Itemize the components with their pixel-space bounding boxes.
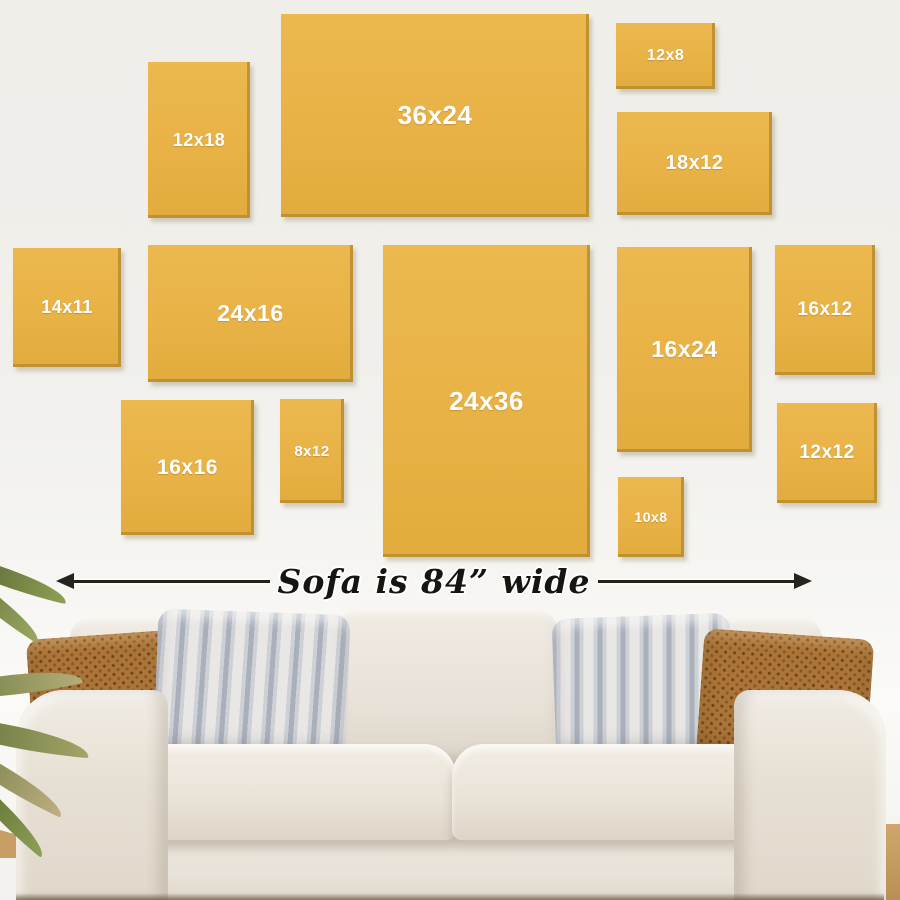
- frame-size-label: 8x12: [294, 443, 329, 460]
- arrowhead-left-icon: [56, 573, 74, 589]
- pillow-striped-left: [154, 609, 351, 761]
- frame-size-label: 36x24: [398, 100, 473, 131]
- sofa-width-annotation: Sofa is 84” wide: [56, 561, 812, 601]
- frame-size-label: 16x16: [157, 456, 218, 480]
- frame-size-label: 12x12: [799, 442, 854, 464]
- frame-12x18: 12x18: [148, 62, 250, 218]
- frame-24x16: 24x16: [148, 245, 353, 382]
- frame-size-label: 14x11: [41, 297, 93, 318]
- arrowhead-right-icon: [794, 573, 812, 589]
- sofa-width-label: Sofa is 84” wide: [278, 562, 591, 601]
- sofa-arm-right: [734, 690, 886, 900]
- frame-16x16: 16x16: [121, 400, 254, 535]
- frame-size-label: 16x12: [797, 299, 852, 321]
- frame-size-label: 24x16: [217, 300, 283, 327]
- frame-36x24: 36x24: [281, 14, 589, 217]
- measure-line-left: [74, 580, 270, 583]
- frame-16x24: 16x24: [617, 247, 752, 452]
- frame-size-label: 16x24: [651, 336, 717, 363]
- frame-12x8: 12x8: [616, 23, 715, 89]
- frame-10x8: 10x8: [618, 477, 684, 557]
- wall-art-size-guide-scene: 12x1836x2412x818x1214x1124x1616x168x1224…: [0, 0, 900, 900]
- sofa-arm-left: [16, 690, 168, 900]
- frame-size-label: 10x8: [634, 509, 667, 525]
- frame-16x12: 16x12: [775, 245, 875, 375]
- frame-size-label: 12x18: [173, 130, 226, 151]
- measure-line-right: [598, 580, 794, 583]
- frame-14x11: 14x11: [13, 248, 121, 367]
- frame-size-label: 12x8: [647, 47, 685, 65]
- frame-18x12: 18x12: [617, 112, 772, 215]
- frame-size-label: 18x12: [665, 152, 723, 175]
- sofa-bottom-shadow: [16, 893, 884, 900]
- frame-8x12: 8x12: [280, 399, 344, 503]
- frame-12x12: 12x12: [777, 403, 877, 503]
- frame-24x36: 24x36: [383, 245, 590, 557]
- frame-size-label: 24x36: [449, 386, 524, 417]
